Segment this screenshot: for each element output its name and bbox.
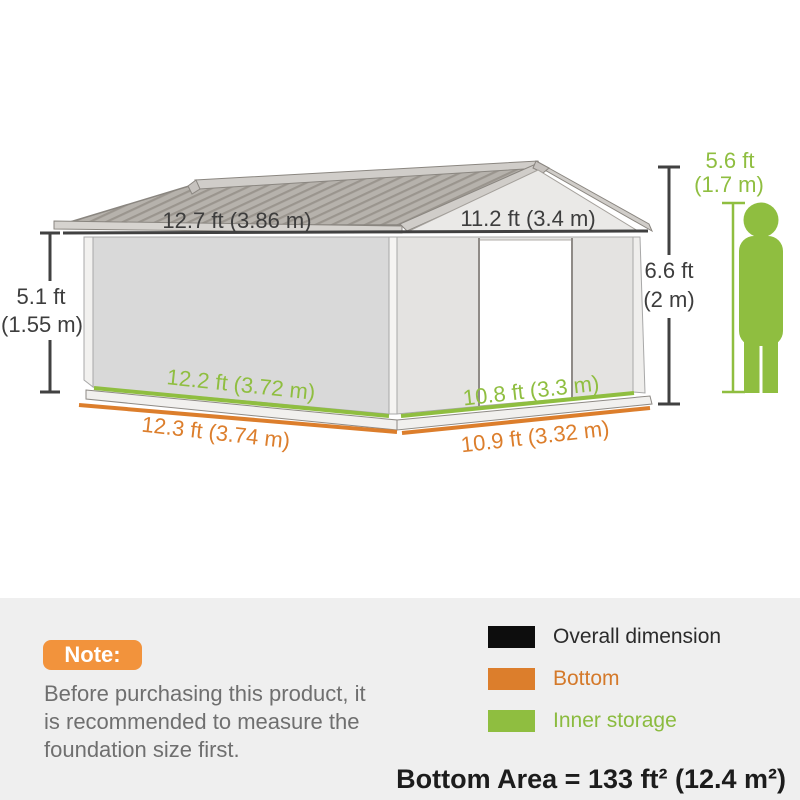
- gable-corner-trim-right: [633, 237, 645, 393]
- note-line: is recommended to measure the: [44, 708, 366, 736]
- shed-dimension-diagram: 12.7 ft (3.86 m) 11.2 ft (3.4 m) 5.1 ft …: [0, 0, 800, 800]
- label-bottom-gable: 10.9 ft (3.32 m): [460, 416, 611, 458]
- overall-line-top: [63, 231, 648, 233]
- label-ridge-height-ft: 6.6 ft: [645, 258, 694, 283]
- inner-storage-swatch: [488, 710, 535, 732]
- label-person-height-m: (1.7 m): [694, 172, 764, 197]
- label-gable-top: 11.2 ft (3.4 m): [460, 206, 595, 231]
- label-wall-height-ft: 5.1 ft: [17, 284, 66, 309]
- shed-drawing: 12.7 ft (3.86 m) 11.2 ft (3.4 m) 5.1 ft …: [0, 0, 800, 598]
- legend-label-overall: Overall dimension: [553, 625, 721, 649]
- ridge-height-dim-line: [658, 167, 680, 404]
- legend: Overall dimension Bottom Inner storage: [488, 626, 721, 752]
- bottom-area-text: Bottom Area = 133 ft² (12.4 m²): [396, 764, 786, 795]
- legend-row-inner: Inner storage: [488, 710, 721, 732]
- person-silhouette: [739, 203, 783, 394]
- label-wall-height-m: (1.55 m): [1, 312, 83, 337]
- note-text: Before purchasing this product, it is re…: [44, 680, 366, 764]
- label-person-height-ft: 5.6 ft: [706, 148, 755, 173]
- note-line: Before purchasing this product, it: [44, 680, 366, 708]
- label-ridge-height-m: (2 m): [643, 287, 694, 312]
- note-badge: Note:: [43, 640, 142, 670]
- side-wall-corner-trim-left: [84, 237, 93, 387]
- overall-dimension-swatch: [488, 626, 535, 648]
- bottom-swatch: [488, 668, 535, 690]
- legend-row-bottom: Bottom: [488, 668, 721, 690]
- label-side-top: 12.7 ft (3.86 m): [162, 208, 311, 233]
- info-panel: Note: Before purchasing this product, it…: [0, 598, 800, 800]
- legend-row-overall: Overall dimension: [488, 626, 721, 648]
- legend-label-inner: Inner storage: [553, 709, 677, 733]
- corner-post: [389, 237, 397, 414]
- note-line: foundation size first.: [44, 736, 366, 764]
- legend-label-bottom: Bottom: [553, 667, 620, 691]
